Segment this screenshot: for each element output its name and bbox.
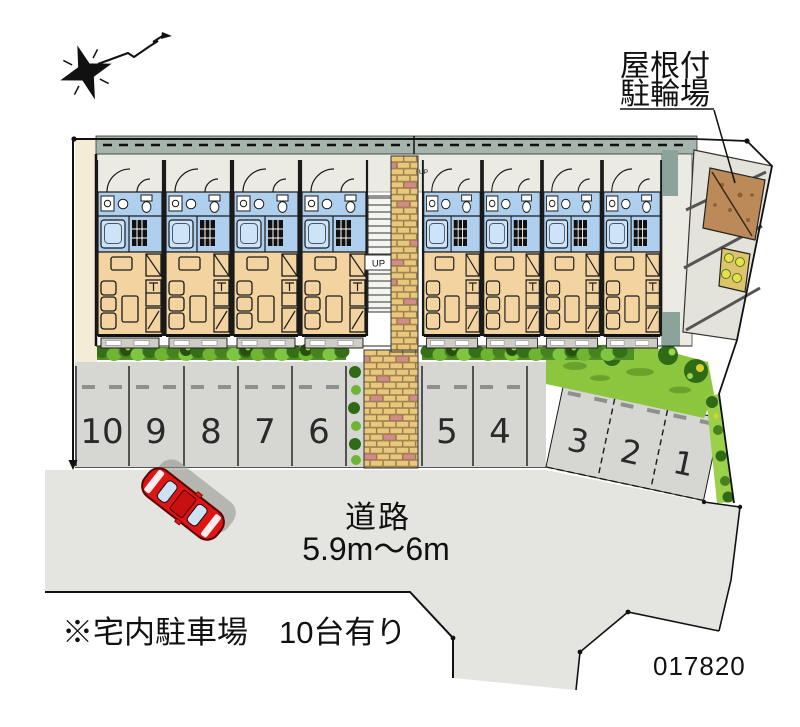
parking-space-8: 8 [200, 412, 222, 452]
parking-space-5: 5 [436, 412, 458, 452]
site-plan: 10 9 8 7 6 5 4 3 2 1 [0, 0, 800, 727]
parking-space-9: 9 [145, 412, 167, 452]
stairs-up-label: UP [372, 259, 385, 270]
road-name-label: 道路 [345, 500, 411, 535]
parking-space-4: 4 [489, 412, 511, 452]
road-width-label: 5.9m～6m [302, 531, 450, 567]
north-arrow-tip [161, 32, 172, 39]
bike-parking-label-line2: 駐輪場 [620, 78, 710, 111]
stairs-up-label-small: UP [419, 169, 428, 176]
bike-parking-structure [683, 150, 772, 340]
parking-dashes [82, 385, 520, 389]
site-plan-canvas: 10 9 8 7 6 5 4 3 2 1 [0, 0, 800, 727]
side-yard [75, 140, 97, 362]
end-wall [662, 150, 678, 196]
north-arrow [52, 32, 172, 108]
parking-note: ※宅内駐車場 10台有り [62, 615, 406, 650]
parking-space-10: 10 [80, 412, 123, 452]
parking-space-7: 7 [254, 412, 276, 452]
end-wall [662, 312, 680, 346]
plan-number: 017820 [653, 651, 746, 681]
parking-space-6: 6 [308, 412, 330, 452]
